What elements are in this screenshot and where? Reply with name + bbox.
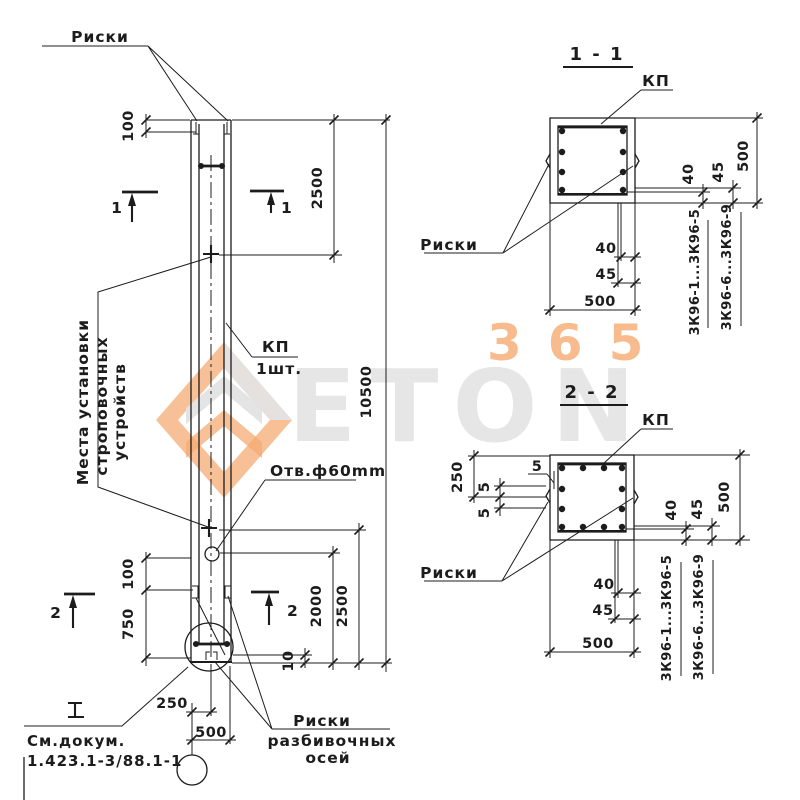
section-1-1-kp-label: КП <box>642 72 670 90</box>
s11-dim-45-right: 45 <box>711 161 727 182</box>
dim-500-axis: 500 <box>195 725 227 741</box>
s11-series-a: 3К96-1...3К96-5 <box>688 209 703 336</box>
s11-dim-500-bottom: 500 <box>584 294 616 310</box>
hole-label: Отв.ф60mm <box>270 462 386 480</box>
dim-10: 10 <box>281 650 297 671</box>
doc-ref-line1: См.докум. <box>27 732 125 750</box>
dim-750: 750 <box>121 608 137 640</box>
risk-label-top: Риски <box>71 28 129 46</box>
s11-dim-40-bottom: 40 <box>595 241 616 257</box>
axes-risk-line3: осей <box>305 749 350 767</box>
s22-dim-5-lower: 5 <box>477 508 493 519</box>
section-1-1-risk-label: Риски <box>420 236 478 254</box>
cut-2-left-number: 2 <box>50 604 62 622</box>
cut-1-right-number: 1 <box>281 199 293 217</box>
drawing-page: 365 ETON 1 <box>0 0 800 800</box>
watermark-brand: ETON <box>288 348 649 465</box>
kp-qty-label: 1шт. <box>256 360 302 378</box>
s22-dim-5-upper: 5 <box>477 482 493 493</box>
s11-dim-40-right: 40 <box>681 163 697 184</box>
cut-2-right-number: 2 <box>287 602 299 620</box>
strop-label-line1: Места установки <box>74 319 92 485</box>
dim-100-bottom: 100 <box>121 558 137 590</box>
s22-series-a: 3К96-1...3К96-5 <box>660 555 675 682</box>
s22-dim-45-right: 45 <box>690 498 706 519</box>
section-1-1-title: 1 - 1 <box>569 44 624 65</box>
section-2-2-kp-label: КП <box>642 411 670 429</box>
s11-dim-500-right: 500 <box>736 140 752 172</box>
s11-dim-45-bottom: 45 <box>595 267 616 283</box>
doc-ref-line2: 1.423.1-3/88.1-1 <box>27 752 182 770</box>
dim-2500-top: 2500 <box>310 167 326 209</box>
s11-series-b: 3К96-6...3К96-9 <box>720 204 735 331</box>
axes-risk-line2: разбивочных <box>267 732 396 750</box>
dim-100-top: 100 <box>121 110 137 142</box>
dim-10500: 10500 <box>359 366 375 419</box>
s22-dim-250: 250 <box>450 461 466 493</box>
s22-dim-40-bottom: 40 <box>593 577 614 593</box>
cut-1-left-number: 1 <box>111 199 123 217</box>
s22-series-b: 3К96-6...3К96-9 <box>692 554 707 681</box>
dim-2000: 2000 <box>309 585 325 627</box>
strop-label-line2: строповочных <box>93 336 111 475</box>
dim-2500-bottom: 2500 <box>335 585 351 627</box>
s22-dim-45-bottom: 45 <box>592 603 613 619</box>
axes-risk-line1: Риски <box>293 712 351 730</box>
section-2-2-title: 2 - 2 <box>564 382 619 403</box>
strop-label-line3: устройств <box>111 363 129 461</box>
dim-250: 250 <box>156 696 188 712</box>
column-drawing: 365 ETON 1 <box>0 0 800 800</box>
kp-label: КП <box>262 338 290 356</box>
section-2-2-risk-label: Риски <box>420 564 478 582</box>
s22-dim-500-bottom: 500 <box>582 636 614 652</box>
s22-dim-5-top: 5 <box>532 459 543 475</box>
s22-dim-40-right: 40 <box>664 499 680 520</box>
s22-dim-500-right: 500 <box>717 481 733 513</box>
